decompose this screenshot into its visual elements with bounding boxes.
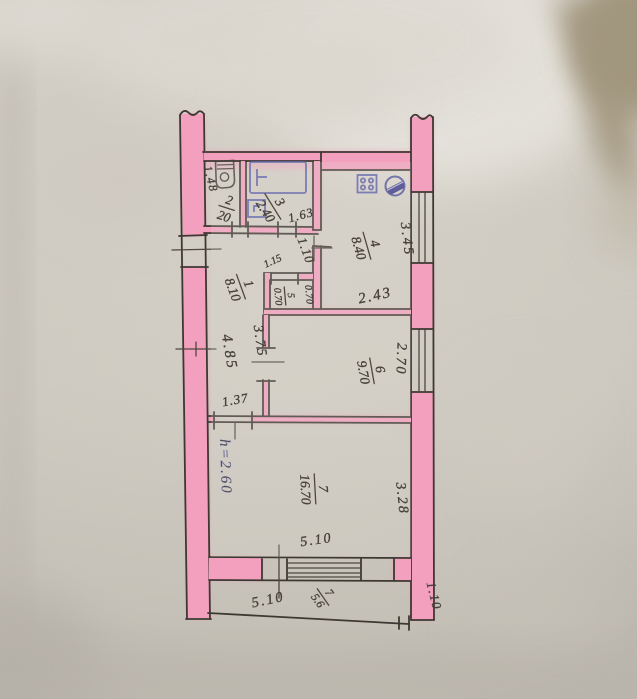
- svg-text:5: 5: [285, 293, 296, 299]
- svg-text:h=2.60: h=2.60: [216, 439, 234, 495]
- svg-text:2.70: 2.70: [392, 343, 408, 376]
- svg-text:0.70: 0.70: [271, 287, 283, 305]
- svg-text:0.70: 0.70: [302, 285, 315, 305]
- svg-text:16.70: 16.70: [297, 474, 314, 505]
